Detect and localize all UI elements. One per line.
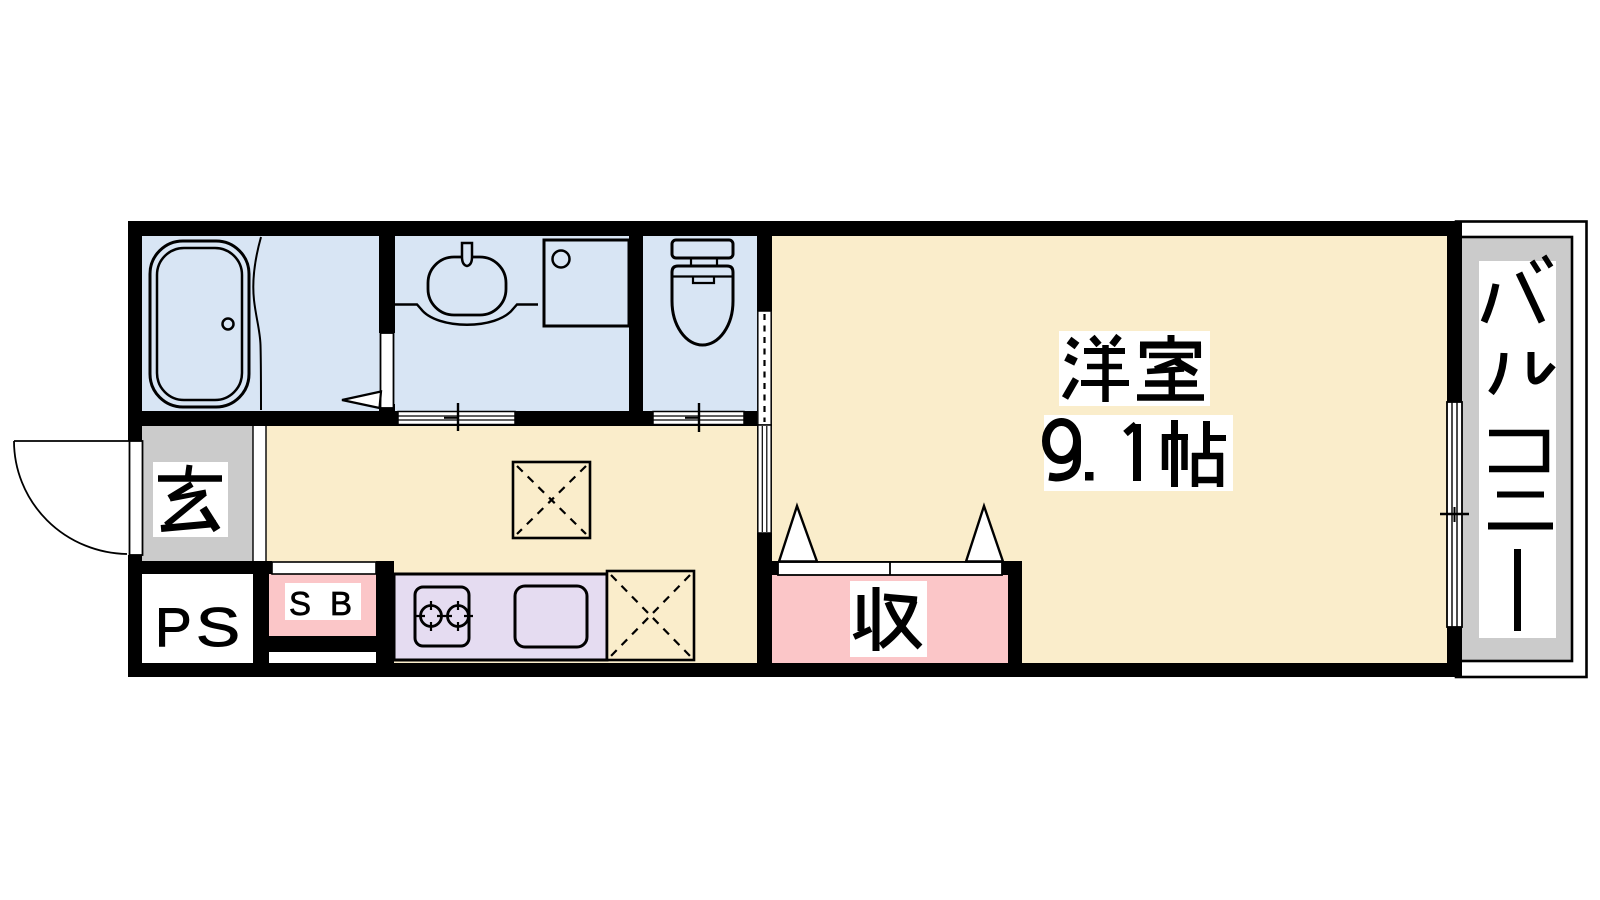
svg-text:S: S [196,596,240,658]
svg-text:S: S [289,585,311,622]
svg-text:P: P [155,596,192,658]
svg-text:B: B [330,585,352,622]
